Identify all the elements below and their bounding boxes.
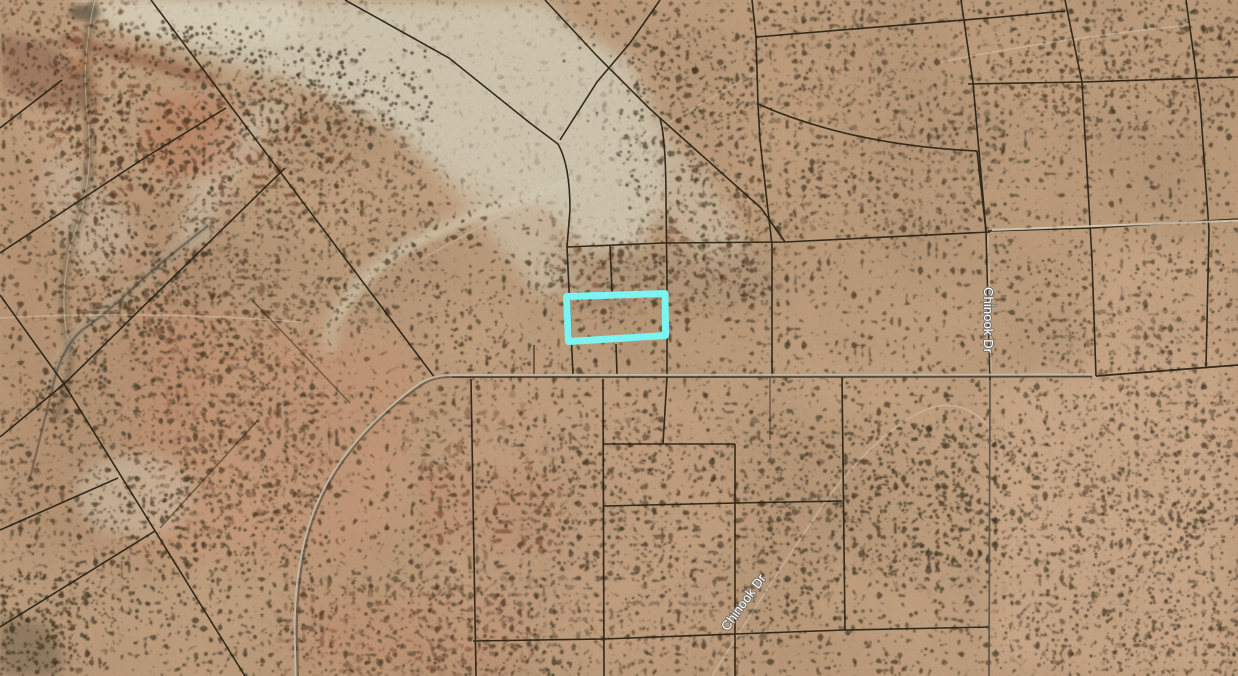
- svg-text:Chinook Dr: Chinook Dr: [981, 287, 996, 354]
